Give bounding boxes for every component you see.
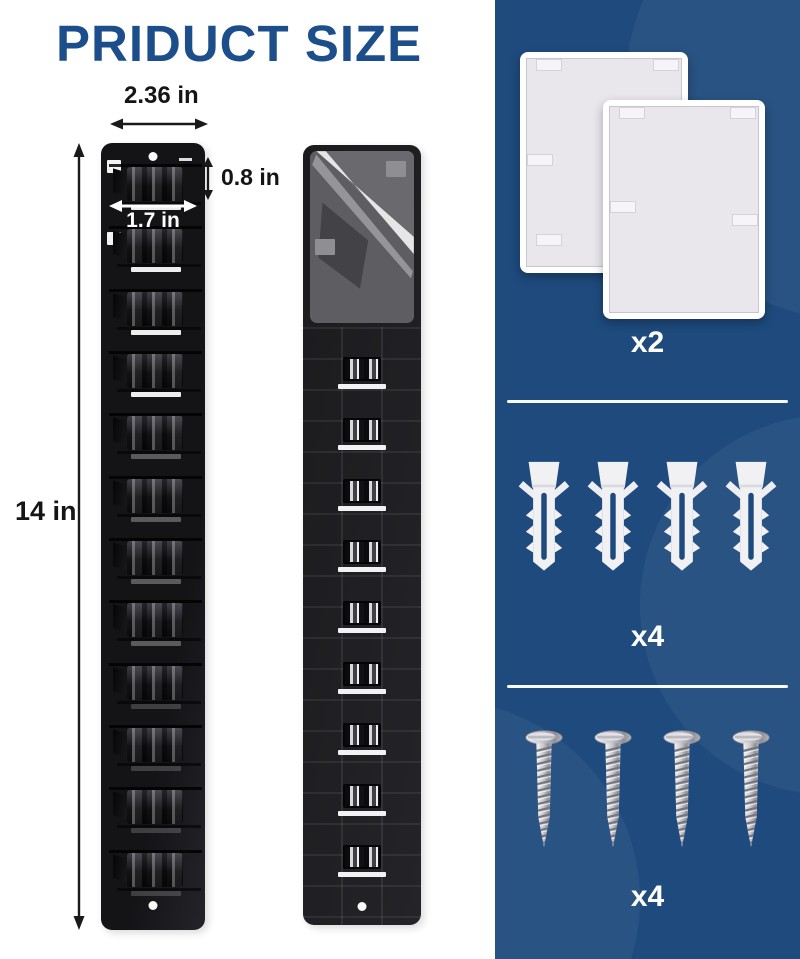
hook-lip-highlight — [131, 579, 181, 584]
screw-icon — [661, 728, 703, 854]
hook-rows — [101, 161, 205, 909]
height-dimension-label: 14 in — [15, 496, 77, 527]
hook-lip-highlight — [131, 267, 181, 272]
hook-lip-highlight — [131, 454, 181, 459]
accessories-panel: x2 — [495, 0, 800, 959]
hook-row — [101, 286, 205, 348]
product-size-infographic: PRIDUCT SIZE 2.36 in 14 in 0.8 in — [0, 0, 800, 959]
sheet-tab-icon — [730, 107, 756, 119]
hook-clip — [127, 603, 183, 637]
wall-anchor-icon — [584, 455, 642, 583]
screws-count-label: x4 — [495, 880, 800, 914]
width-dimension-arrow — [110, 117, 208, 131]
hook-row — [101, 410, 205, 472]
hook-row — [101, 722, 205, 784]
clip-base-highlight — [338, 750, 386, 755]
anchors-count-label: x4 — [495, 620, 800, 654]
clip-base-highlight — [338, 872, 386, 877]
clip-icon — [338, 845, 386, 877]
film-tab-icon — [386, 161, 406, 177]
clip-band — [343, 357, 381, 381]
clip-column — [303, 357, 421, 877]
hook-lip-highlight — [131, 828, 181, 833]
hook-clip — [127, 790, 183, 824]
hook-lip-highlight — [131, 891, 181, 896]
clip-base-highlight — [338, 689, 386, 694]
clip-base-highlight — [338, 628, 386, 633]
wall-anchor-icon — [653, 455, 711, 583]
clip-base-highlight — [338, 384, 386, 389]
screw-icon — [730, 728, 772, 854]
hook-lip-highlight — [131, 704, 181, 709]
hook-clip — [127, 479, 183, 513]
hook-row — [101, 847, 205, 909]
clip-icon — [338, 540, 386, 572]
mount-hole-top-icon — [149, 152, 158, 161]
clip-band — [343, 418, 381, 442]
hook-row — [101, 660, 205, 722]
section-divider — [507, 685, 788, 688]
clip-icon — [338, 601, 386, 633]
page-title: PRIDUCT SIZE — [56, 14, 422, 73]
hook-clip — [127, 229, 183, 263]
wall-anchor-icon — [722, 455, 780, 583]
hook-row — [101, 784, 205, 846]
hook-lip-highlight — [131, 517, 181, 522]
hook-clip — [127, 541, 183, 575]
sheet-tab-icon — [732, 214, 758, 226]
film-tab-icon — [315, 239, 335, 255]
hook-lip-highlight — [131, 392, 181, 397]
hook-width-label: 1.7 in — [101, 209, 205, 233]
protective-film — [310, 151, 414, 323]
hook-clip — [127, 167, 183, 201]
screw-icon — [592, 728, 634, 854]
hook-row — [101, 535, 205, 597]
hook-clip — [127, 292, 183, 326]
film-sheet-icon — [603, 100, 765, 319]
width-dimension-label: 2.36 in — [124, 82, 199, 110]
height-dimension-arrow — [72, 143, 86, 930]
screw-icon — [523, 728, 565, 854]
sheet-tab-icon — [536, 59, 562, 71]
clip-icon — [338, 479, 386, 511]
clip-band — [343, 479, 381, 503]
clip-icon — [338, 418, 386, 450]
sheet-tab-icon — [619, 107, 645, 119]
sheet-tab-icon — [653, 59, 679, 71]
clip-base-highlight — [338, 445, 386, 450]
clip-icon — [338, 662, 386, 694]
hook-height-label: 0.8 in — [221, 164, 280, 191]
hook-clip — [127, 853, 183, 887]
rack-back-view — [303, 145, 421, 925]
sheet-tab-icon — [536, 234, 562, 246]
sheet-tab-icon — [610, 201, 636, 213]
clip-band — [343, 845, 381, 869]
hook-row — [101, 348, 205, 410]
hook-lip-highlight — [131, 641, 181, 646]
hook-lip-highlight — [131, 766, 181, 771]
clip-band — [343, 540, 381, 564]
wall-anchor-icon — [515, 455, 573, 583]
hook-lip-highlight — [131, 330, 181, 335]
hook-row — [101, 473, 205, 535]
clip-base-highlight — [338, 506, 386, 511]
sheet-tab-icon — [527, 154, 553, 166]
clip-band — [343, 662, 381, 686]
rack-front-view: 1.7 in — [101, 143, 205, 930]
clip-band — [343, 784, 381, 808]
hook-clip — [127, 354, 183, 388]
clip-icon — [338, 784, 386, 816]
clip-icon — [338, 357, 386, 389]
hook-clip — [127, 416, 183, 450]
anchors-row — [495, 455, 800, 583]
films-count-label: x2 — [495, 326, 800, 360]
clip-base-highlight — [338, 811, 386, 816]
clip-base-highlight — [338, 567, 386, 572]
clip-band — [343, 601, 381, 625]
hook-clip — [127, 666, 183, 700]
mount-hole-bottom-icon — [358, 902, 367, 911]
hook-clip — [127, 728, 183, 762]
screws-row — [495, 728, 800, 854]
section-divider — [507, 400, 788, 403]
clip-icon — [338, 723, 386, 755]
clip-band — [343, 723, 381, 747]
hook-row — [101, 597, 205, 659]
mount-hole-bottom-icon — [149, 901, 158, 910]
